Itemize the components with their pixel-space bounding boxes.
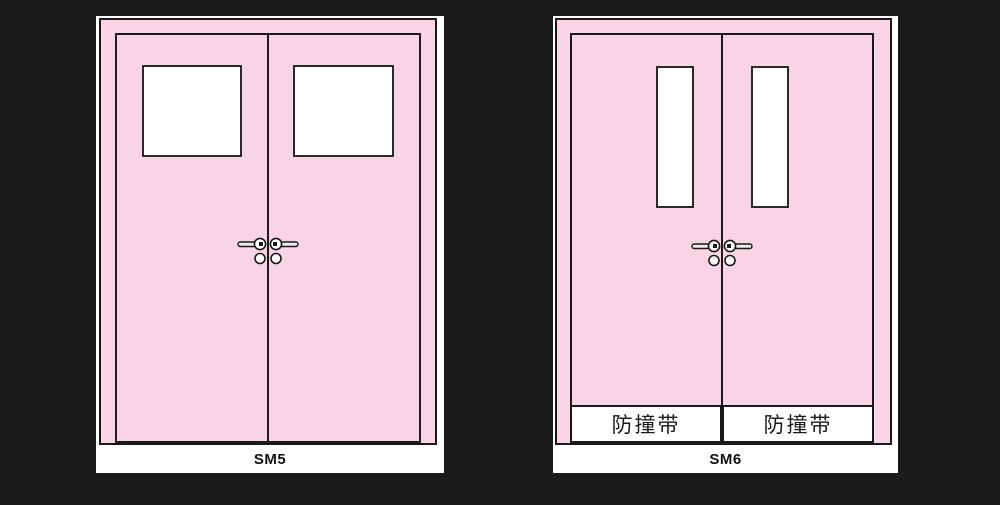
impact-band-right: 防撞带 xyxy=(722,405,874,443)
door-handles-icon xyxy=(236,234,300,268)
lock-cylinder-left-icon xyxy=(709,256,719,266)
drawing-background: SM5 防撞带 防撞带 S xyxy=(0,0,1000,505)
door-unit-sm5: SM5 xyxy=(96,16,444,473)
impact-band-left: 防撞带 xyxy=(570,405,722,443)
vision-window-right xyxy=(751,66,789,208)
vision-window-left xyxy=(142,65,242,157)
spindle-right-icon xyxy=(727,244,731,248)
lock-cylinder-right-icon xyxy=(725,256,735,266)
spindle-left-icon xyxy=(259,242,263,246)
spindle-right-icon xyxy=(273,242,277,246)
lock-cylinder-left-icon xyxy=(255,254,265,264)
lock-cylinder-right-icon xyxy=(271,254,281,264)
door-frame: 防撞带 防撞带 xyxy=(555,18,892,445)
door-frame xyxy=(99,18,437,445)
impact-band-label: 防撞带 xyxy=(612,409,681,439)
door-handles-icon xyxy=(690,236,754,270)
door-unit-sm6: 防撞带 防撞带 SM6 xyxy=(553,16,898,473)
spindle-left-icon xyxy=(713,244,717,248)
unit-label: SM5 xyxy=(96,446,444,473)
vision-window-right xyxy=(293,65,394,157)
vision-window-left xyxy=(656,66,694,208)
unit-label: SM6 xyxy=(553,446,898,473)
impact-band-label: 防撞带 xyxy=(764,409,833,439)
